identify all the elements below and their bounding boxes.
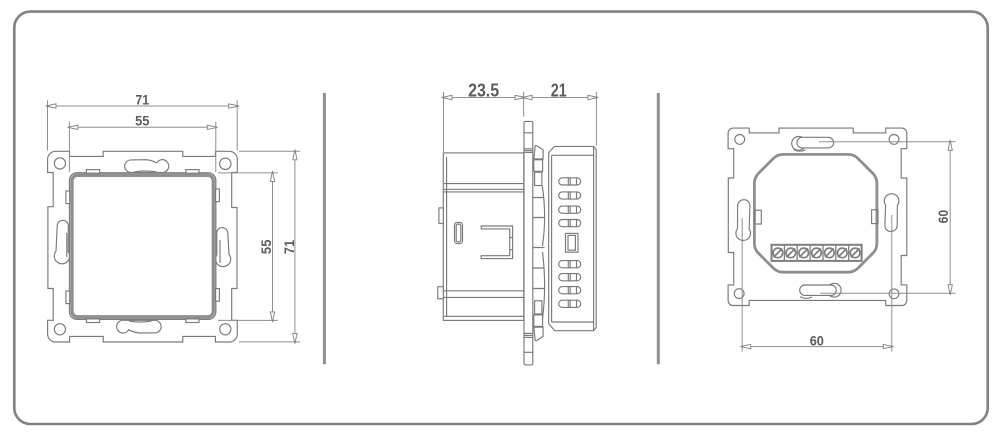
svg-text:60: 60 [935, 210, 951, 224]
svg-text:55: 55 [135, 113, 149, 129]
svg-text:71: 71 [135, 92, 149, 108]
svg-text:71: 71 [281, 240, 297, 254]
svg-text:23.5: 23.5 [468, 79, 499, 100]
svg-text:21: 21 [551, 79, 567, 100]
svg-text:60: 60 [810, 332, 824, 348]
svg-text:55: 55 [258, 239, 274, 254]
